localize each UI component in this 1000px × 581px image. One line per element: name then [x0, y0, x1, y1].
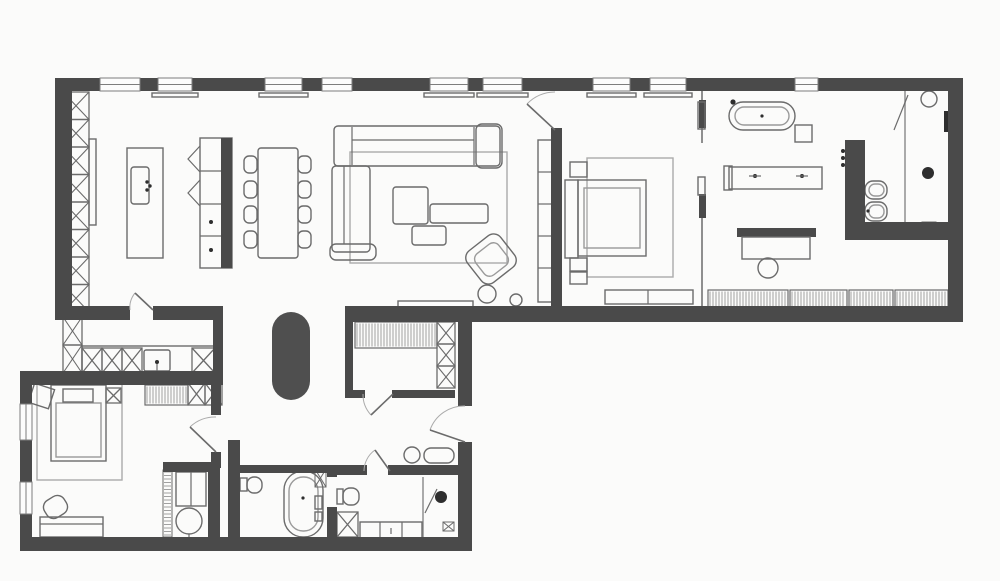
- nightstand: [570, 272, 587, 284]
- toilet-bowl: [247, 477, 262, 493]
- window-sill: [587, 93, 636, 97]
- mattress: [584, 188, 640, 248]
- toilet-tank: [337, 489, 343, 504]
- dining-table: [258, 148, 298, 258]
- wall: [458, 322, 472, 406]
- bath-stool: [795, 125, 812, 142]
- entry-bench: [424, 448, 454, 463]
- bed2-mattress: [56, 403, 101, 457]
- bed2-frame: [51, 385, 106, 461]
- laundry-faucet: [155, 360, 159, 364]
- dining-chair: [244, 231, 257, 248]
- island-faucet: [145, 180, 148, 183]
- sofa-chaise: [476, 124, 502, 168]
- wall: [20, 537, 472, 551]
- wall: [345, 306, 565, 322]
- sofa-left: [332, 166, 370, 252]
- wall: [388, 465, 458, 475]
- door-bathroom-leaf: [375, 450, 390, 471]
- cabinet-knob: [209, 248, 213, 252]
- wall: [948, 78, 963, 322]
- coffee-table: [430, 204, 488, 223]
- door-master-bedroom-leaf: [527, 104, 555, 130]
- tub-drain: [760, 114, 763, 117]
- cabinet-door-swing: [188, 180, 200, 206]
- wall: [330, 465, 367, 475]
- wall: [55, 78, 72, 320]
- nightstand: [570, 258, 587, 271]
- sofa-top: [334, 126, 500, 166]
- media-shelf-unit: [538, 140, 552, 302]
- window-sill: [644, 93, 692, 97]
- cabinet-door-swing: [188, 146, 200, 172]
- flush-button: [841, 163, 845, 167]
- bedroom2-hanging-rack: [145, 385, 188, 405]
- wall: [458, 442, 472, 551]
- bedroom2-desk: [40, 517, 103, 537]
- bedroom2-rug: [37, 381, 122, 480]
- toilet-tank: [240, 478, 247, 491]
- door-master-bedroom-swing: [527, 92, 555, 104]
- shower-stool: [921, 91, 937, 107]
- shower-door: [425, 489, 437, 513]
- wall: [327, 507, 337, 540]
- entry-pouf: [404, 447, 420, 463]
- door-entrance-swing: [430, 406, 465, 430]
- wardrobe-rack: [849, 290, 893, 308]
- bed-headboard: [565, 180, 578, 258]
- flush-button: [841, 149, 845, 153]
- toilet-bowl: [343, 488, 359, 505]
- dining-chair: [244, 156, 257, 173]
- shower-drain: [435, 491, 447, 503]
- dining-chair: [298, 181, 311, 198]
- master-bedroom-rug: [587, 158, 673, 277]
- toilet-inner: [869, 184, 884, 196]
- shower-drain: [922, 167, 934, 179]
- apartment-floor-plan: [0, 0, 1000, 581]
- dining-chair: [244, 181, 257, 198]
- coffee-table: [393, 187, 428, 224]
- double-vanity: [729, 167, 822, 189]
- armchair: [462, 230, 520, 287]
- washing-machine: [176, 508, 202, 534]
- tub-faucet: [730, 99, 735, 104]
- wall: [20, 371, 223, 385]
- dining-chair: [298, 206, 311, 223]
- dining-chair: [244, 206, 257, 223]
- side-table: [510, 294, 522, 306]
- wall: [240, 465, 330, 473]
- wall: [845, 222, 950, 240]
- hall-rug: [272, 312, 310, 400]
- dining-chair: [298, 231, 311, 248]
- wall: [345, 306, 353, 398]
- shower-door: [894, 95, 908, 130]
- nightstand: [570, 162, 587, 177]
- wall: [551, 306, 963, 322]
- pouf: [478, 285, 496, 303]
- door-entrance-leaf: [430, 430, 465, 442]
- wardrobe-rack: [790, 290, 847, 308]
- door-laundry-swing: [130, 293, 135, 310]
- makeup-counter: [737, 228, 816, 237]
- glass-post: [699, 194, 706, 218]
- bidet-tap: [866, 209, 869, 212]
- bathtub2-inner: [289, 477, 318, 531]
- wall: [345, 390, 365, 398]
- door-bedroom2-leaf: [190, 427, 216, 452]
- bidet-inner: [869, 205, 884, 218]
- dining-chair: [298, 156, 311, 173]
- wall: [20, 378, 32, 545]
- cabinet-knob: [209, 220, 213, 224]
- wall: [208, 468, 220, 540]
- bed-bench: [605, 290, 693, 304]
- island-faucet: [145, 188, 148, 191]
- bathtub2: [284, 471, 323, 537]
- window-sill: [259, 93, 308, 97]
- island-faucet: [148, 184, 151, 187]
- makeup-stool: [758, 258, 778, 278]
- kitchen-cabinet-back: [221, 138, 232, 268]
- tub2-drain: [301, 496, 304, 499]
- island-sink: [131, 167, 149, 204]
- wall: [228, 440, 240, 540]
- window-sill: [477, 93, 528, 97]
- wall: [55, 306, 130, 320]
- towel-radiator: [698, 177, 705, 195]
- makeup-desk: [742, 237, 810, 259]
- master-bed: [578, 180, 646, 256]
- wall: [211, 385, 221, 415]
- vanity-side-panel: [724, 166, 732, 190]
- coffee-table: [412, 226, 446, 245]
- flush-button: [841, 156, 845, 160]
- wall: [153, 306, 223, 320]
- door-walkin-closet-leaf: [371, 394, 393, 415]
- window-sill: [152, 93, 198, 97]
- bed2-pillow: [63, 389, 93, 402]
- wall: [392, 390, 455, 398]
- floor-plan-screenshot: [0, 0, 1000, 581]
- window-sill: [424, 93, 474, 97]
- kitchen-radiator: [89, 139, 96, 225]
- door-laundry-leaf: [135, 293, 153, 310]
- wall: [551, 128, 562, 310]
- door-bedroom2-swing: [190, 417, 216, 427]
